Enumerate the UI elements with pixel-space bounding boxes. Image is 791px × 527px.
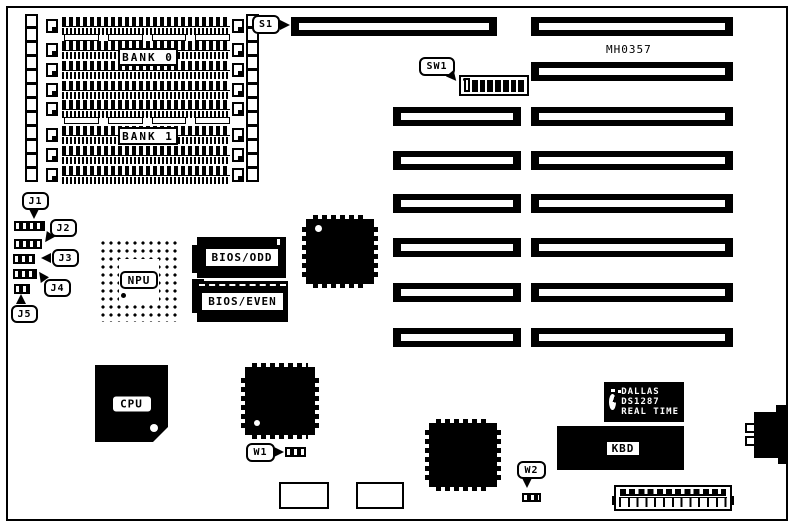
expansion-slot-short-2 [393,151,521,170]
bios-even-chip: BIOS/EVEN [197,281,288,322]
expansion-slot-long-1 [531,17,733,36]
j1-callout: J1 [22,192,49,210]
j4-callout: J4 [44,279,71,297]
dip-cell-3 [480,80,486,92]
dip-cell-8 [518,80,524,92]
keyboard-din-pin-2 [745,436,756,446]
simm-latch [46,19,58,33]
simm-latch [232,43,244,57]
power-connector-pins-bottom [619,497,727,507]
simm-latch [46,168,58,182]
j4-jumper [13,269,37,279]
npu-socket: NPU [98,238,180,322]
simm-latch [232,83,244,97]
dip-cell-5 [495,80,501,92]
npu-label: NPU [120,271,158,289]
expansion-slot-short-3 [393,194,521,213]
keyboard-din-tab-top [776,405,788,413]
expansion-slot-long-2 [531,62,733,81]
expansion-slot-short-1 [393,107,521,126]
simm-latch [232,63,244,77]
rtc-type: REAL TIME [621,407,679,417]
j2-jumper [14,239,42,249]
j5-callout: J5 [11,305,38,323]
power-connector-pins-top [620,489,726,496]
qfp-chip-2 [245,367,315,435]
expansion-slot-long-5 [531,194,733,213]
qfp1-pin1-dot [315,225,322,232]
simm-row-7 [62,146,230,165]
j3-callout: J3 [52,249,79,267]
npu-pin1-marker [121,293,126,298]
simm-latch [232,19,244,33]
keyboard-din-connector [754,412,788,458]
w1-callout: W1 [246,443,275,462]
dram-chip-strip-1 [64,34,230,41]
dram-chip-strip-2 [64,117,230,124]
dip-cell-6 [503,80,509,92]
s1-callout: S1 [252,15,280,34]
rtc-model: DS1287 [621,397,679,407]
keyboard-din-pin-1 [745,423,756,433]
w2-pointer [522,478,532,488]
oscillator-2 [356,482,404,509]
w1-jumper [285,447,306,457]
simm-latch [232,168,244,182]
simm-latch [232,148,244,162]
w2-callout: W2 [517,461,546,479]
cpu-pin1-dot [150,424,158,432]
motherboard-diagram: BANK 0 BANK 1 S1 MH0357 SW1 J1 J2 J3 J4 [0,0,791,527]
bios-odd-label: BIOS/ODD [204,247,280,268]
bank0-label: BANK 0 [118,48,178,66]
qfp2-pin1-dot [254,420,260,426]
simm-row-8 [62,166,230,185]
rtc-clock-icon [609,394,616,410]
simm-latch [232,128,244,142]
j5-jumper [14,284,30,294]
bank-pin-column-right [246,14,259,182]
rtc-chip: DALLAS DS1287 REAL TIME [604,382,684,422]
power-connector [614,485,732,511]
simm-latch [232,102,244,116]
dip-cell-4 [487,80,493,92]
w1-pointer [274,447,284,457]
simm-latch [46,63,58,77]
cpu-label: CPU [111,394,153,413]
dip-cell-7 [511,80,517,92]
expansion-slot-long-7 [531,283,733,302]
simm-row-4 [62,81,230,100]
part-number: MH0357 [606,43,652,56]
j1-jumper [14,221,45,231]
w2-jumper [522,493,541,502]
expansion-slot-long-8 [531,328,733,347]
expansion-slot-short-5 [393,283,521,302]
simm-latch [46,83,58,97]
j5-pointer [16,294,26,304]
bank1-label: BANK 1 [118,127,178,145]
bios-even-label: BIOS/EVEN [200,291,285,312]
rtc-brand: DALLAS [621,387,679,397]
cpu-chip: CPU [95,365,168,442]
simm-latch [46,43,58,57]
expansion-slot-long-4 [531,151,733,170]
bios-odd-chip: BIOS/ODD [197,237,286,278]
j3-jumper [13,254,35,264]
j3-pointer [41,253,51,263]
expansion-slot-long-6 [531,238,733,257]
keyboard-din-tab-bottom [778,457,788,464]
simm-latch [46,128,58,142]
s1-pointer [280,20,290,30]
s1-slot [291,17,497,36]
kbd-label: KBD [605,440,641,457]
dip-cell-2 [472,80,478,92]
kbd-chip: KBD [557,426,684,470]
expansion-slot-long-3 [531,107,733,126]
simm-latch [46,148,58,162]
simm-latch [46,102,58,116]
expansion-slot-short-4 [393,238,521,257]
qfp-chip-3 [429,423,497,487]
expansion-slot-short-6 [393,328,521,347]
oscillator-1 [279,482,329,509]
sw1-dip-switch [459,75,529,96]
bank-pin-column-left [25,14,38,182]
j2-callout: J2 [50,219,77,237]
j1-pointer [29,209,39,219]
qfp-chip-1 [306,219,374,284]
